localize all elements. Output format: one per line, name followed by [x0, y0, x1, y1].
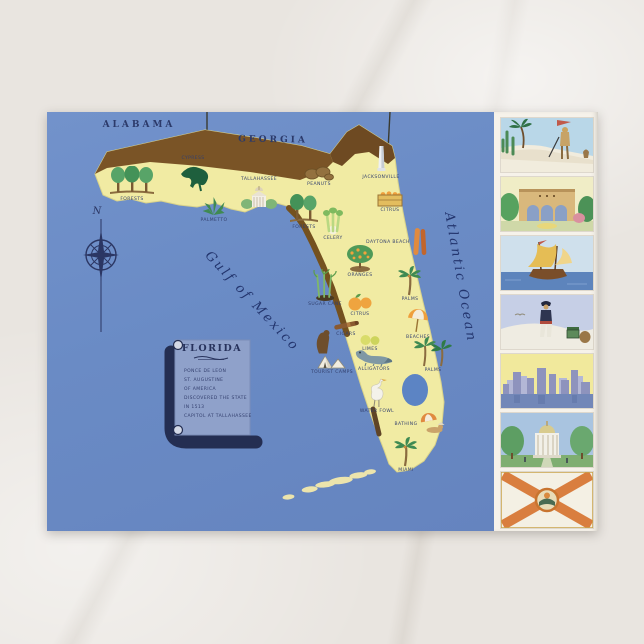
map-item-cigar: CIGARS: [333, 319, 359, 337]
palmetto-icon: [201, 195, 227, 217]
map-item-celery: CELERY: [322, 207, 344, 241]
vignette-spanish-mission: [501, 177, 593, 231]
map-item-sugarcane: SUGAR CANE: [308, 269, 342, 307]
map-item-label: TOURIST CAMPS: [311, 370, 353, 375]
palm1-icon: [394, 437, 418, 467]
map-item-label: SUGAR CANE: [308, 302, 342, 307]
sunbather-icon: [419, 412, 445, 436]
map-item-label: PALMS: [402, 297, 419, 302]
map-item-pines3: FORESTS: [107, 166, 157, 202]
vignette-conquistador-landing: [501, 118, 593, 172]
map-item-sunbather: BATHING: [395, 412, 446, 436]
vignette-spanish-galleon: [501, 236, 593, 290]
capitol-icon: [241, 183, 277, 211]
map-item-label: ALLIGATORS: [358, 367, 390, 372]
map-item-monument: JACKSONVILLE: [362, 144, 399, 180]
surfboards-icon: [412, 227, 428, 257]
map-item-label: FORESTS: [292, 225, 315, 230]
map-item-peanuts: PEANUTS: [304, 165, 334, 187]
photo-background: ALABAMA GEORGIA Gulf of Mexico Atlantic …: [0, 0, 644, 644]
cypress-icon: [175, 162, 211, 192]
map-item-pines2: FORESTS: [287, 194, 321, 230]
pines3-icon: [107, 166, 157, 196]
vignette-pirate-with-treasure: [501, 295, 593, 349]
cigar-icon: [333, 319, 359, 331]
orange-tree-icon: [344, 244, 376, 272]
map-item-oranges: CITRUS: [347, 293, 373, 317]
oranges-icon: [347, 293, 373, 311]
map-item-label: JACKSONVILLE: [362, 175, 399, 180]
alligator-icon: [354, 348, 394, 366]
map-item-egret: WATER FOWL: [360, 378, 394, 414]
map-item-bear: [313, 329, 333, 356]
vignette-state-capitol: [501, 413, 593, 467]
limes-icon: [359, 334, 381, 346]
palm1-icon: [398, 266, 422, 296]
map-item-palm1: PALMS: [398, 266, 422, 302]
map-item-label: TALLAHASSEE: [241, 177, 277, 182]
map-item-capitol: TALLAHASSEE: [241, 177, 277, 211]
palms2-icon: [414, 335, 452, 367]
map-item-alligator: ALLIGATORS: [354, 348, 394, 372]
map-item-tent: TOURIST CAMPS: [311, 353, 353, 375]
florida-postcard: ALABAMA GEORGIA Gulf of Mexico Atlantic …: [47, 112, 598, 531]
crate-icon: [377, 191, 403, 207]
map-item-label: PEANUTS: [307, 182, 331, 187]
vignette-florida-state-flag: [501, 472, 593, 528]
vignette-miami-skyline: [501, 354, 593, 408]
map-item-label: PALMS: [425, 368, 442, 373]
map-item-palmetto: PALMETTO: [201, 195, 228, 223]
umbrella-icon: [407, 308, 429, 334]
map-item-label: CITRUS: [351, 312, 370, 317]
celery-icon: [322, 207, 344, 235]
map-item-label: WATER FOWL: [360, 409, 394, 414]
pines2-icon: [287, 194, 321, 224]
map-item-label: BATHING: [395, 422, 418, 427]
map-item-crate: CITRUS: [377, 191, 403, 213]
map-items-layer: FORESTSCYPRESSPALMETTOTALLAHASSEEFORESTS…: [47, 112, 494, 531]
egret-icon: [366, 378, 388, 408]
peanuts-icon: [304, 165, 334, 181]
map-item-label: CIGARS: [336, 332, 355, 337]
map-item-label: CELERY: [323, 236, 342, 241]
map-item-label: PALMETTO: [201, 218, 228, 223]
map-item-cypress: CYPRESS: [175, 156, 211, 192]
map-item-label: FORESTS: [120, 197, 143, 202]
bear-icon: [313, 329, 333, 355]
map-item-label: CYPRESS: [181, 156, 204, 161]
map-item-label: CITRUS: [381, 208, 400, 213]
map-item-palm1: MIAMI: [394, 437, 418, 473]
map-item-label: MIAMI: [398, 468, 414, 473]
map-item-label: ORANGES: [348, 273, 373, 278]
map-area: ALABAMA GEORGIA Gulf of Mexico Atlantic …: [47, 112, 494, 531]
monument-icon: [374, 144, 388, 174]
map-item-palms2: PALMS: [414, 335, 452, 373]
map-item-orange-tree: ORANGES: [344, 244, 376, 278]
sugarcane-icon: [312, 269, 338, 301]
tent-icon: [317, 353, 347, 369]
